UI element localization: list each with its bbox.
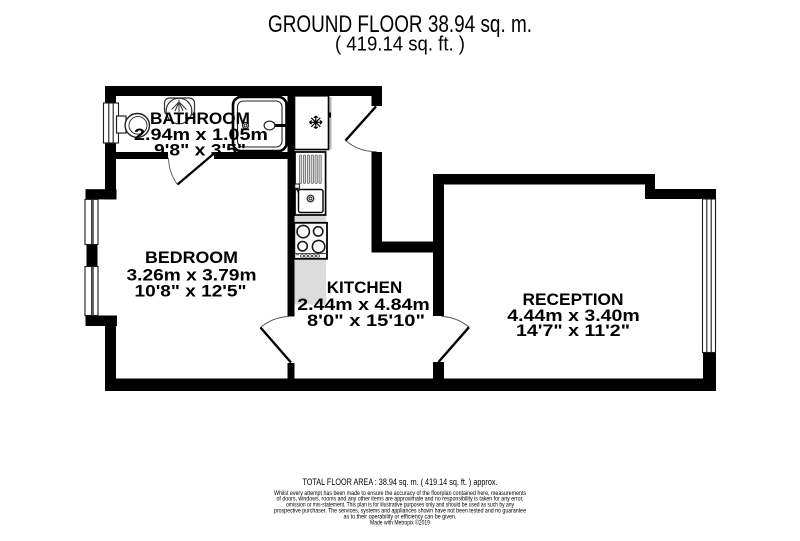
svg-text:9'8" x 3'5": 9'8" x 3'5" xyxy=(154,141,246,160)
svg-text:BEDROOM: BEDROOM xyxy=(145,248,238,267)
svg-text:TOTAL FLOOR AREA : 38.94 sq. m: TOTAL FLOOR AREA : 38.94 sq. m. ( 419.14… xyxy=(303,477,498,487)
svg-text:8'0" x 15'10": 8'0" x 15'10" xyxy=(307,311,425,330)
svg-text:14'7" x 11'2": 14'7" x 11'2" xyxy=(516,321,630,340)
svg-text:( 419.14 sq. ft. ): ( 419.14 sq. ft. ) xyxy=(335,34,465,56)
svg-text:10'8" x 12'5": 10'8" x 12'5" xyxy=(135,282,247,301)
svg-text:Made with Metropix ©2019: Made with Metropix ©2019 xyxy=(370,520,430,527)
